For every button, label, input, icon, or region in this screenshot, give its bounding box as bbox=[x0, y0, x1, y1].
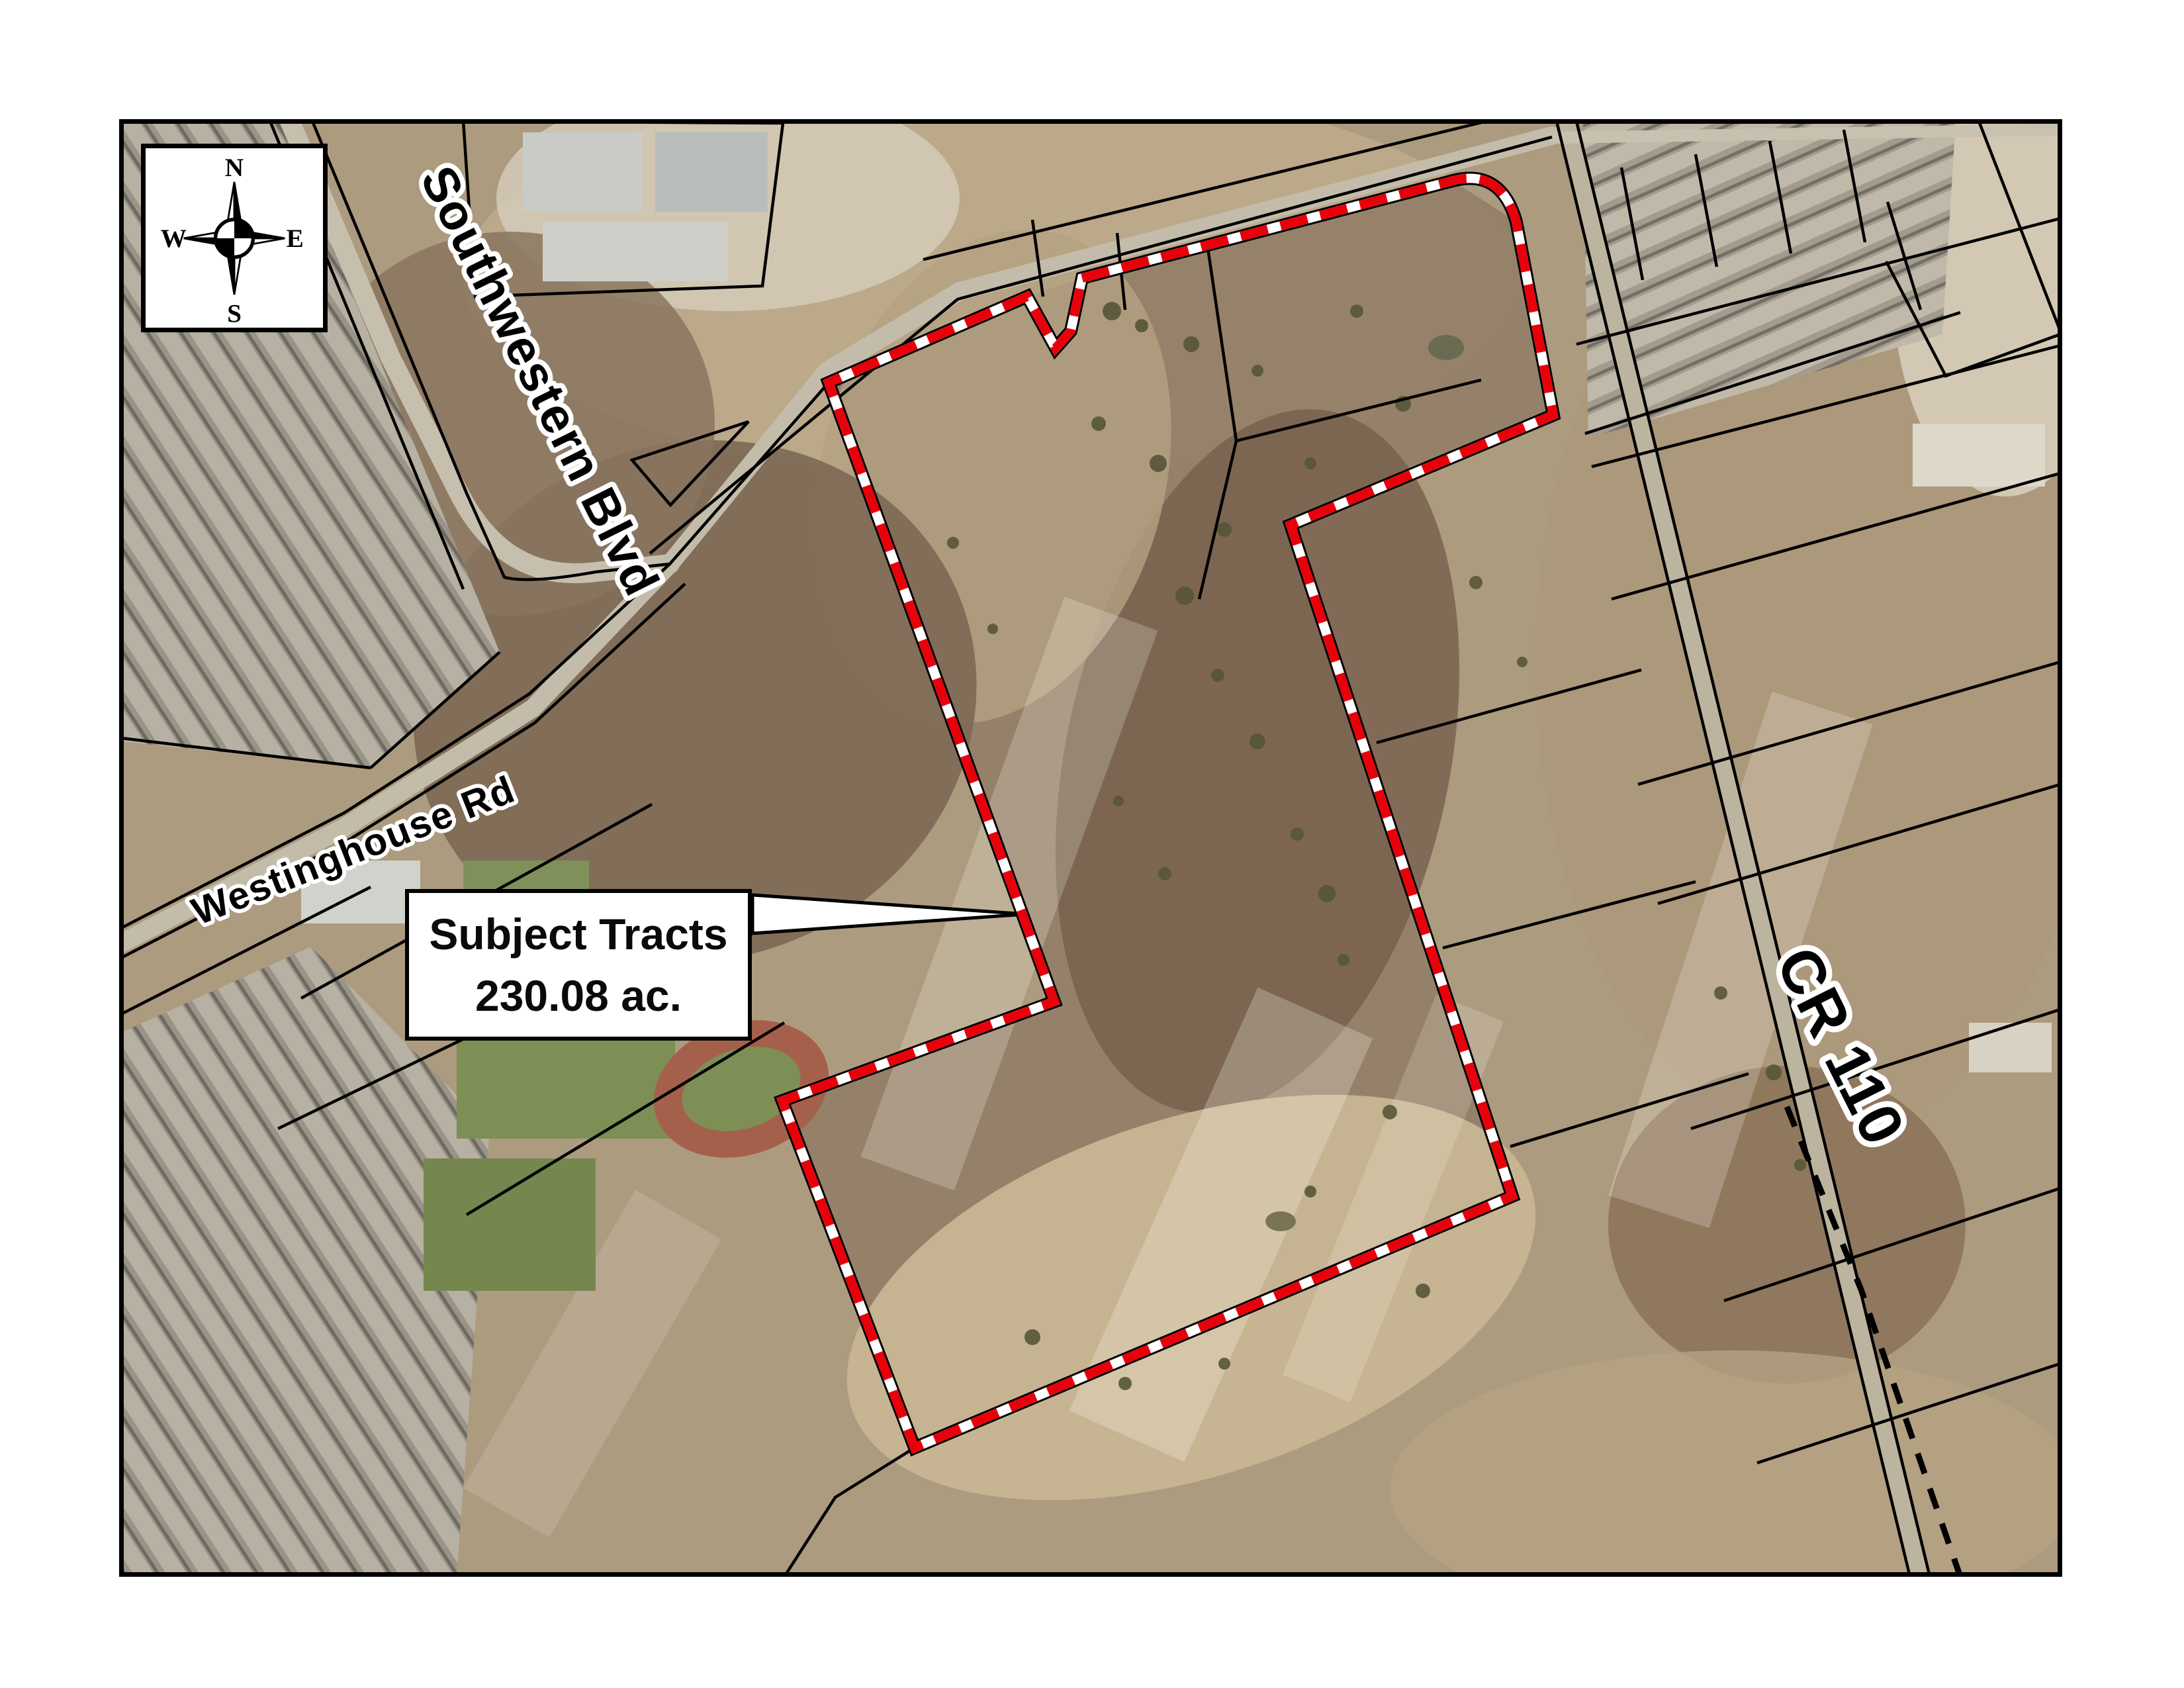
aerial-map-canvas: Southwestern Blvd Westinghouse Rd CR 110… bbox=[119, 119, 2062, 1577]
pond bbox=[1265, 1211, 1296, 1231]
callout-box: Subject Tracts 230.08 ac. bbox=[405, 889, 752, 1041]
compass-east-label: E bbox=[287, 224, 304, 253]
pond bbox=[1428, 335, 1464, 360]
page: { "compass": { "north": "N", "east": "E"… bbox=[0, 0, 2184, 1688]
north-arrow-box: N S W E bbox=[141, 144, 328, 332]
compass-west-label: W bbox=[161, 224, 187, 253]
building-roof bbox=[1969, 1023, 2052, 1072]
building-roof bbox=[655, 132, 768, 212]
callout-acreage: 230.08 ac. bbox=[475, 965, 682, 1026]
building-roof bbox=[1913, 424, 2045, 487]
aerial-imagery: Southwestern Blvd Westinghouse Rd CR 110 bbox=[119, 119, 2062, 1577]
sports-field bbox=[424, 1158, 596, 1291]
parking-lot bbox=[543, 222, 728, 281]
building-roof bbox=[523, 132, 642, 212]
callout-title: Subject Tracts bbox=[429, 904, 727, 964]
compass-south-label: S bbox=[227, 299, 242, 324]
compass-rose-icon: N S W E bbox=[152, 152, 317, 325]
compass-north-label: N bbox=[225, 153, 244, 182]
